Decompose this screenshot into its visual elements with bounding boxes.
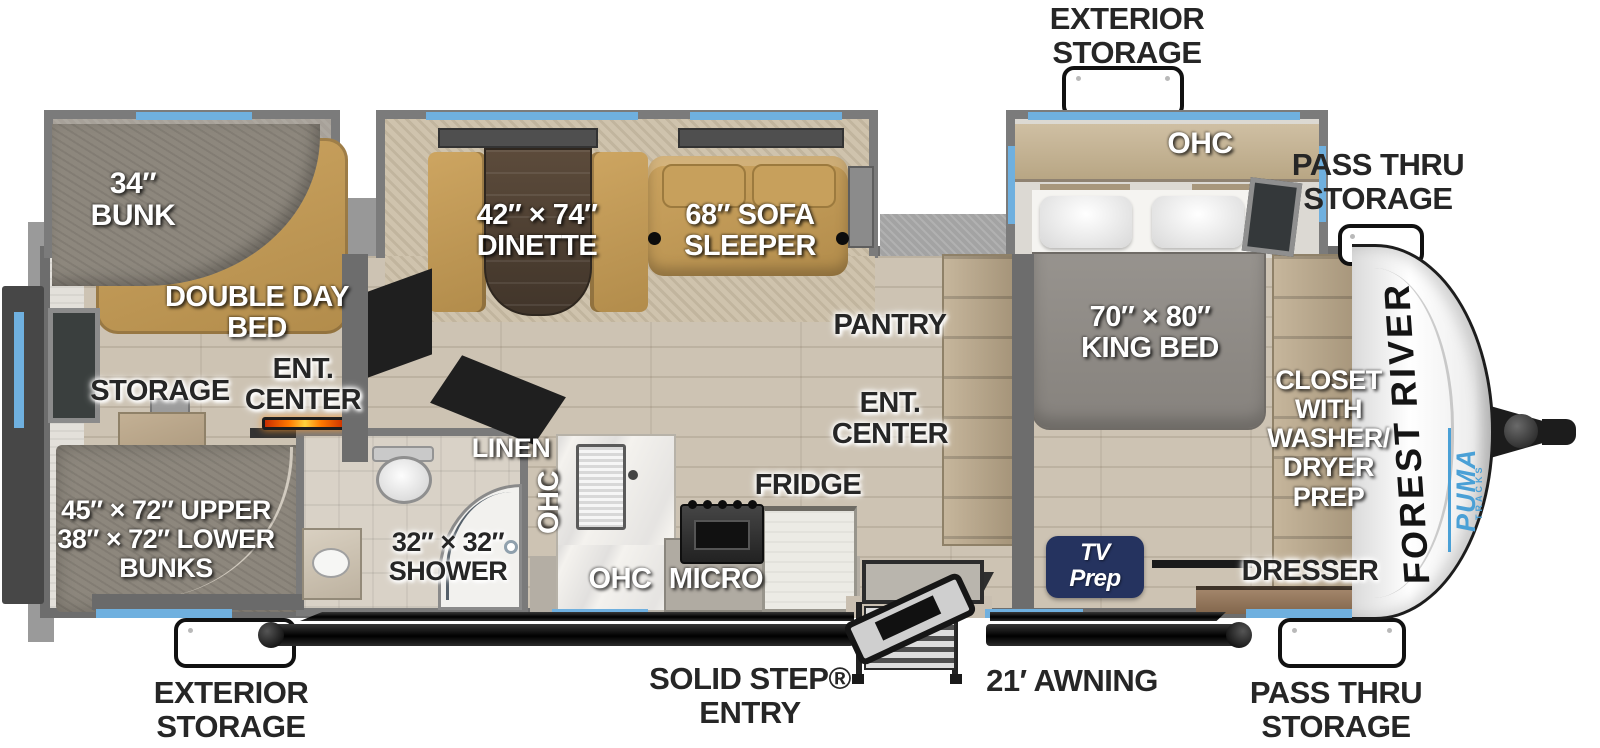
tongue-jack	[1504, 414, 1538, 448]
label-pass-thru-storage-top: PASS THRU STORAGE	[1258, 148, 1498, 216]
awning-arm-right	[990, 612, 1226, 621]
label-double-day-bed: DOUBLE DAY BED	[152, 282, 362, 345]
pillow-right	[1152, 196, 1244, 248]
sink-cover	[576, 444, 626, 530]
label-awning: 21′ AWNING	[957, 664, 1187, 698]
sofa-window-valance	[678, 128, 844, 148]
bedroom-window-accent-top	[1028, 112, 1300, 120]
stove-burners	[688, 500, 697, 509]
bedroom-window-accent-left	[1008, 146, 1015, 224]
toilet	[376, 456, 432, 504]
awning-arm-left	[300, 612, 854, 621]
awning-cap-left	[258, 622, 284, 648]
bottom-window-accent-1	[96, 609, 232, 618]
wall-jog-right	[880, 214, 1008, 256]
sofa-cupholder-left	[648, 232, 661, 245]
bunk-slide-window-accent	[136, 112, 252, 120]
label-fridge: FRIDGE	[753, 470, 863, 501]
label-king-bed: 70″ × 80″ KING BED	[1055, 302, 1245, 365]
label-ohc-kitchen: OHC	[575, 564, 665, 595]
label-solid-step-entry: SOLID STEP® ENTRY	[615, 662, 885, 730]
bunk-step-base	[92, 594, 304, 610]
awning-roller-right	[986, 624, 1242, 646]
brand-puma-sub: TRACKS	[1474, 452, 1486, 532]
dinette-window-valance	[438, 128, 598, 148]
label-sofa: 68″ SOFA SLEEPER	[665, 200, 835, 263]
sofa-end-table	[848, 166, 874, 248]
label-dinette: 42″ × 74″ DINETTE	[452, 200, 622, 263]
label-exterior-storage-top: EXTERIOR STORAGE	[1007, 2, 1247, 70]
label-bunk-34: 34″ BUNK	[53, 168, 213, 233]
bottom-window-accent-4	[1246, 609, 1362, 618]
label-ent-center-main: ENT. CENTER	[820, 388, 960, 451]
pillow-left	[1040, 196, 1132, 248]
awning-roller-left	[266, 624, 854, 646]
faucet	[628, 470, 638, 480]
label-ohc-bedroom: OHC	[1130, 128, 1270, 160]
label-bunks: 45″ × 72″ UPPER 38″ × 72″ LOWER BUNKS	[36, 496, 296, 583]
dinette-window-accent	[426, 112, 638, 120]
label-pantry: PANTRY	[825, 310, 955, 341]
sofa-window-accent	[690, 112, 842, 120]
stove-oven-window	[694, 520, 750, 550]
sofa-cupholder-right	[836, 232, 849, 245]
rear-window-accent	[14, 312, 24, 428]
floorplan-canvas: EXTERIOR STORAGE PASS THRU STORAGE EXTER…	[0, 0, 1600, 748]
bath-sink	[312, 548, 350, 578]
label-ent-center-rear: ENT. CENTER	[233, 354, 373, 417]
label-pass-thru-storage-bottom: PASS THRU STORAGE	[1216, 676, 1456, 744]
label-storage: STORAGE	[75, 376, 245, 407]
awning-cap-right	[1226, 622, 1252, 648]
label-dresser: DRESSER	[1240, 556, 1380, 587]
hitch-coupler	[1542, 419, 1576, 445]
label-closet: CLOSET WITH WASHER/ DRYER PREP	[1256, 366, 1401, 512]
bedroom-tv	[1152, 560, 1252, 568]
label-exterior-storage-bottom: EXTERIOR STORAGE	[111, 676, 351, 744]
label-tv-prep: TV Prep	[1046, 540, 1144, 592]
brand-puma: PUMA	[1448, 428, 1474, 552]
wall-bedroom	[1012, 254, 1034, 616]
label-shower: 32″ × 32″ SHOWER	[363, 528, 533, 586]
pass-thru-door-bottom	[1278, 618, 1406, 668]
label-micro: MICRO	[666, 564, 766, 595]
fridge	[762, 506, 857, 612]
fireplace	[262, 417, 348, 430]
label-ohc-side: OHC	[534, 448, 568, 558]
